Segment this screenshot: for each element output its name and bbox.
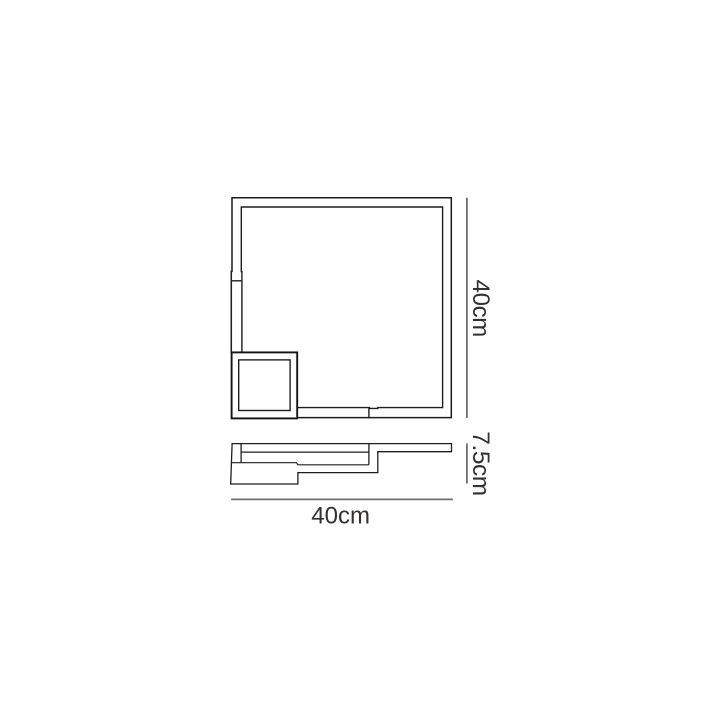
- svg-text:7.5cm: 7.5cm: [467, 431, 494, 495]
- svg-text:40cm: 40cm: [467, 280, 494, 337]
- svg-text:40cm: 40cm: [311, 502, 370, 529]
